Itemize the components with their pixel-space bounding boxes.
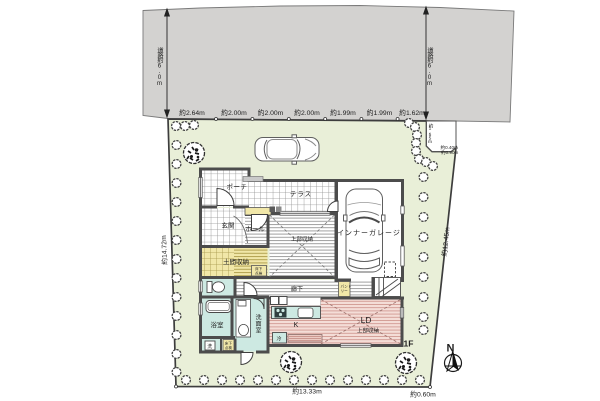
svg-text:床下: 床下 (255, 266, 263, 271)
svg-text:上部収納: 上部収納 (291, 235, 314, 243)
svg-text:土間収納: 土間収納 (223, 257, 249, 266)
svg-text:パント: パント (341, 284, 352, 289)
svg-text:リー: リー (341, 289, 349, 293)
svg-text:約1.99m: 約1.99m (367, 108, 393, 117)
svg-text:インナーガレージ: インナーガレージ (337, 228, 401, 237)
svg-text:約2.00m: 約2.00m (258, 108, 284, 117)
svg-text:約0.90m: 約0.90m (441, 149, 459, 156)
svg-text:冷: 冷 (277, 336, 282, 343)
svg-text:点検: 点検 (225, 345, 233, 350)
svg-text:約0.60m: 約0.60m (410, 390, 436, 399)
svg-text:上部収納: 上部収納 (357, 327, 380, 335)
svg-text:N: N (447, 343, 455, 355)
svg-text:洗: 洗 (207, 343, 212, 350)
svg-text:テラス: テラス (290, 190, 312, 198)
svg-text:1F: 1F (404, 339, 414, 349)
svg-text:ホール: ホール (245, 225, 265, 233)
svg-text:点検: 点検 (255, 271, 263, 276)
svg-text:洗面室: 洗面室 (254, 313, 261, 334)
svg-text:約1.62m: 約1.62m (399, 108, 425, 117)
svg-text:浴室: 浴室 (211, 320, 225, 329)
svg-text:ポーチ: ポーチ (227, 183, 248, 191)
svg-text:約2.64m: 約2.64m (179, 108, 205, 117)
svg-text:K: K (294, 322, 299, 329)
svg-text:約2.00m: 約2.00m (294, 108, 320, 117)
svg-text:廊下: 廊下 (291, 285, 303, 293)
svg-text:LD: LD (361, 315, 372, 325)
svg-text:道路約6.0m: 道路約6.0m (156, 46, 163, 85)
svg-text:道路約6.0m: 道路約6.0m (426, 46, 433, 85)
svg-text:約14.72m: 約14.72m (159, 235, 169, 265)
svg-text:床下: 床下 (225, 341, 233, 346)
svg-text:約1.99m: 約1.99m (330, 108, 356, 117)
svg-text:約1.55m: 約1.55m (427, 123, 432, 143)
svg-text:玄関: 玄関 (222, 221, 235, 230)
svg-text:約2.00m: 約2.00m (221, 108, 247, 117)
svg-text:約13.33m: 約13.33m (292, 387, 322, 396)
